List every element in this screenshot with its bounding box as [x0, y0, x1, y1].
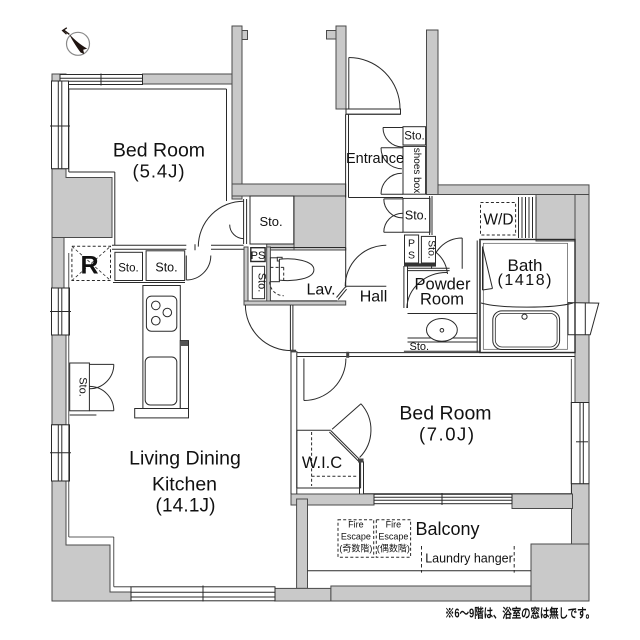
svg-text:W/D: W/D — [483, 212, 513, 229]
svg-text:(1418): (1418) — [498, 272, 552, 289]
svg-text:Sto.: Sto. — [259, 214, 282, 229]
svg-text:Room: Room — [420, 291, 464, 309]
svg-text:Entrance: Entrance — [346, 151, 404, 167]
svg-text:Fire: Fire — [348, 520, 364, 530]
svg-text:(7.0J): (7.0J) — [419, 424, 474, 445]
svg-text:Bed Room: Bed Room — [399, 403, 491, 425]
svg-text:※6～9階は、浴室の窓は無しです。: ※6～9階は、浴室の窓は無しです。 — [445, 606, 595, 621]
svg-text:Bed Room: Bed Room — [113, 140, 205, 162]
svg-text:Sto.: Sto. — [118, 263, 138, 275]
svg-text:(14.1J): (14.1J) — [156, 496, 216, 517]
svg-text:Sto.: Sto. — [405, 209, 427, 223]
svg-text:R: R — [80, 252, 98, 280]
svg-text:Sto.: Sto. — [77, 377, 89, 397]
svg-text:Balcony: Balcony — [415, 519, 479, 539]
svg-text:Escape: Escape — [378, 532, 408, 542]
svg-text:Sto.: Sto. — [426, 240, 438, 259]
svg-text:(5.4J): (5.4J) — [133, 161, 185, 182]
svg-text:P: P — [408, 238, 415, 250]
svg-text:shoes box: shoes box — [411, 148, 422, 194]
svg-text:Sto.: Sto. — [404, 131, 424, 143]
svg-text:Sto.: Sto. — [256, 273, 268, 293]
svg-text:Laundry hanger: Laundry hanger — [425, 552, 513, 566]
svg-text:(奇数階): (奇数階) — [339, 543, 372, 554]
svg-text:S: S — [408, 250, 415, 262]
svg-text:PS: PS — [251, 250, 266, 262]
svg-text:Living Dining: Living Dining — [129, 448, 241, 470]
svg-text:Fire: Fire — [386, 520, 402, 530]
svg-text:(偶数階): (偶数階) — [377, 543, 410, 554]
svg-text:Sto.: Sto. — [155, 261, 177, 275]
svg-text:Escape: Escape — [341, 532, 371, 542]
svg-text:Lav.: Lav. — [306, 282, 335, 299]
svg-text:Hall: Hall — [360, 289, 388, 306]
svg-text:W.I.C: W.I.C — [302, 454, 342, 472]
svg-text:Sto.: Sto. — [410, 341, 430, 353]
svg-text:Kitchen: Kitchen — [152, 474, 217, 496]
